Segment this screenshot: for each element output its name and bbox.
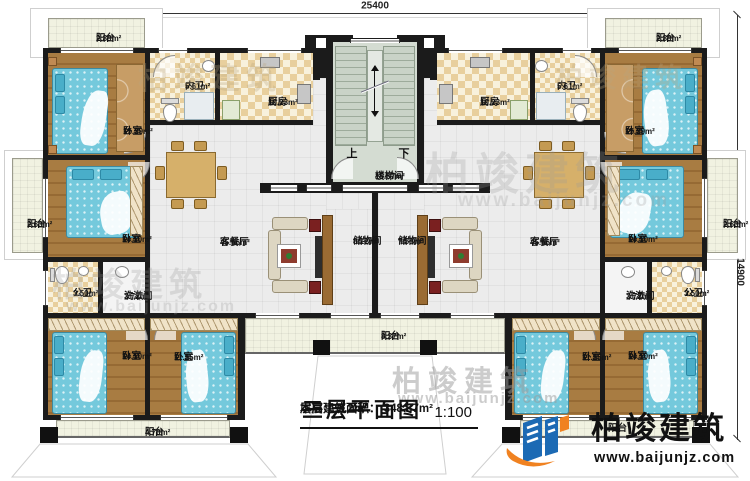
balcony-bottom-left-floor — [56, 420, 230, 438]
sofa — [442, 217, 478, 230]
balcony-right-floor — [707, 158, 738, 253]
pillow — [686, 336, 696, 354]
pillow — [100, 169, 122, 180]
pillow — [224, 336, 234, 354]
wall-kitchen-right — [430, 48, 437, 80]
wall-kitchen-left — [313, 48, 320, 80]
plant — [286, 253, 292, 259]
wall-party-center — [372, 190, 378, 313]
tv — [315, 236, 322, 278]
chair — [155, 166, 165, 180]
pillar — [230, 427, 248, 443]
window-interior — [306, 185, 332, 191]
stair-arrow-down — [371, 111, 379, 121]
tv — [428, 236, 435, 278]
pillow — [54, 358, 64, 376]
window — [247, 48, 302, 53]
window — [43, 270, 48, 306]
pillar — [313, 340, 330, 355]
closet — [130, 166, 143, 236]
closet — [512, 318, 600, 331]
window-interior — [342, 185, 408, 191]
closet — [605, 318, 702, 331]
sliding-door — [330, 313, 370, 318]
shower — [184, 92, 214, 120]
pillar — [420, 340, 437, 355]
plan-height-label: 层高： — [300, 403, 335, 415]
sofa — [272, 217, 308, 230]
stair-arrow-up — [371, 61, 379, 71]
shower — [536, 92, 566, 120]
tv-cabinet — [309, 281, 321, 294]
chair — [539, 199, 552, 209]
wardrobe — [116, 64, 144, 152]
chair — [562, 199, 575, 209]
chair — [585, 166, 595, 180]
pillow — [55, 74, 65, 92]
window-interior — [418, 185, 444, 191]
label-stair-down: 下 — [399, 145, 410, 161]
chair — [194, 141, 207, 151]
hallway-left-floor — [313, 78, 326, 125]
nightstand — [48, 57, 57, 66]
plan-scale: 1:100 — [434, 404, 472, 421]
toilet-tank — [695, 268, 700, 282]
nightstand — [693, 145, 702, 154]
pillar — [40, 427, 58, 443]
wash-basin — [621, 266, 635, 278]
window-interior — [452, 185, 480, 191]
window — [160, 415, 228, 420]
window-stair — [350, 39, 400, 43]
dining-table — [166, 152, 216, 198]
fridge — [222, 100, 240, 120]
plan-height-value: 3.2m — [338, 403, 364, 415]
pillow — [618, 169, 640, 180]
plan-height-line: 层高： 3.2m — [300, 400, 364, 416]
dining-table — [534, 152, 584, 198]
sliding-door — [380, 313, 420, 318]
pillow — [516, 336, 526, 354]
window — [618, 48, 692, 53]
balcony-bottom-center-floor — [245, 318, 505, 354]
room-storage-right-floor — [378, 209, 415, 313]
stove — [470, 57, 490, 68]
chair — [171, 141, 184, 151]
balcony-top-right-floor — [605, 18, 702, 48]
window — [448, 48, 503, 53]
pillow — [54, 336, 64, 354]
tv-wall — [322, 215, 333, 305]
pillow — [686, 358, 696, 376]
nightstand — [48, 145, 57, 154]
chair — [562, 141, 575, 151]
pillow — [685, 96, 695, 114]
chair — [217, 166, 227, 180]
closet — [607, 166, 620, 236]
chair — [194, 199, 207, 209]
wardrobe — [606, 64, 634, 152]
hallway-right-floor — [424, 78, 437, 125]
window — [702, 178, 707, 238]
pillow — [224, 358, 234, 376]
kitchen-sink — [439, 84, 453, 104]
company-logo-website: www.baijunjz.com — [594, 450, 735, 466]
window — [60, 415, 134, 420]
window-interior — [270, 185, 298, 191]
stair-flight-right — [383, 46, 415, 146]
floor-plan-canvas: 25400 14900 — [0, 0, 750, 481]
room-storage-left-floor — [335, 209, 372, 313]
sink — [535, 60, 548, 72]
closet — [150, 318, 238, 331]
tv-cabinet — [309, 219, 321, 232]
window — [255, 313, 300, 318]
tv-cabinet — [429, 281, 441, 294]
sofa — [442, 280, 478, 293]
top-dimension-value: 25400 — [361, 1, 389, 12]
window — [60, 48, 134, 53]
chair — [523, 166, 533, 180]
window — [158, 48, 188, 53]
plan-area-value: 348.37m² — [384, 403, 433, 415]
company-logo: 柏竣建筑 www.baijunjz.com — [495, 408, 745, 474]
right-dimension-value: 14900 — [735, 258, 746, 286]
pillow — [55, 96, 65, 114]
chair — [539, 141, 552, 151]
stair-flight-left — [335, 46, 367, 146]
sink — [78, 266, 89, 276]
pillow — [646, 169, 668, 180]
window — [562, 48, 592, 53]
nightstand — [693, 57, 702, 66]
label-stair-up: 上 — [347, 145, 358, 161]
kitchen-sink — [297, 84, 311, 104]
fridge — [510, 100, 528, 120]
pillow — [685, 74, 695, 92]
tv-cabinet — [429, 219, 441, 232]
stove — [260, 57, 280, 68]
plant — [458, 253, 464, 259]
closet — [48, 318, 145, 331]
pillow — [516, 358, 526, 376]
sofa — [272, 280, 308, 293]
window — [450, 313, 495, 318]
chair — [171, 199, 184, 209]
stair-direction-line — [374, 66, 375, 112]
wash-basin — [115, 266, 129, 278]
sink — [661, 266, 672, 276]
tv-wall — [417, 215, 428, 305]
company-logo-name: 柏竣建筑 — [591, 413, 727, 445]
pillow — [72, 169, 94, 180]
balcony-left-floor — [12, 158, 43, 253]
sink — [202, 60, 215, 72]
company-logo-icon — [495, 408, 587, 472]
